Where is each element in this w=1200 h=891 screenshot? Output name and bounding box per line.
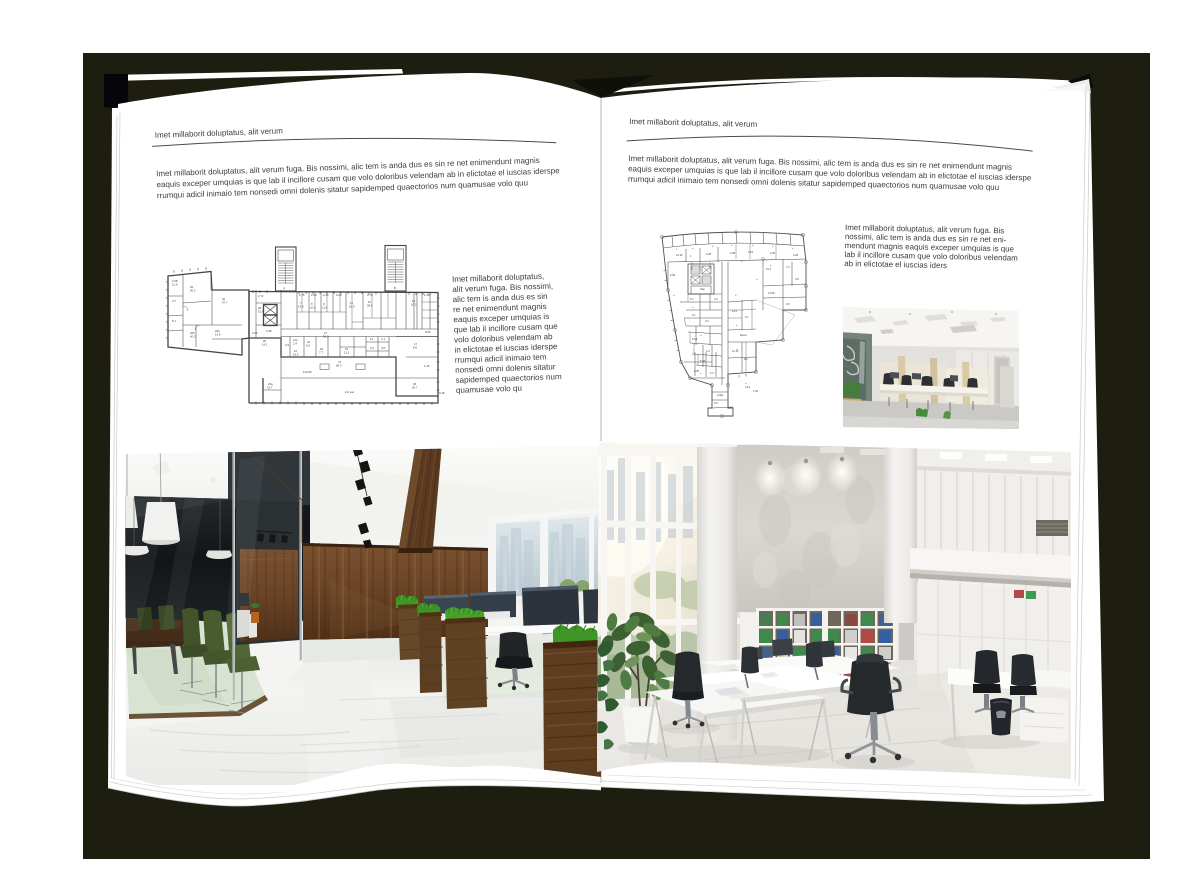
- svg-text:50.7: 50.7: [412, 386, 418, 390]
- svg-text:3.9: 3.9: [795, 277, 799, 281]
- svg-text:Б: Б: [394, 286, 396, 290]
- svg-text:2.75: 2.75: [299, 293, 305, 297]
- svg-text:2.72: 2.72: [258, 294, 264, 298]
- svg-text:4.00: 4.00: [770, 251, 776, 255]
- svg-text:8.8: 8.8: [413, 346, 417, 350]
- svg-text:3.3: 3.3: [705, 319, 709, 323]
- svg-text:14.08: 14.08: [768, 291, 775, 295]
- svg-text:28.6: 28.6: [367, 304, 373, 308]
- svg-text:4.4: 4.4: [706, 349, 710, 353]
- svg-text:9.7: 9.7: [745, 315, 749, 319]
- svg-text:14.16: 14.16: [676, 253, 683, 257]
- svg-text:16.5: 16.5: [349, 305, 355, 309]
- svg-text:9.96: 9.96: [694, 369, 700, 373]
- svg-text:2.96: 2.96: [670, 273, 676, 277]
- svg-text:1.45: 1.45: [424, 293, 430, 297]
- svg-text:6.6: 6.6: [306, 344, 310, 348]
- svg-text:0.54: 0.54: [425, 330, 431, 334]
- svg-text:31.7: 31.7: [267, 386, 273, 390]
- svg-text:37.7: 37.7: [222, 301, 228, 305]
- svg-text:12.6: 12.6: [732, 309, 738, 313]
- svg-text:5.1: 5.1: [172, 319, 176, 323]
- svg-text:12.6: 12.6: [172, 283, 178, 287]
- svg-text:A: A: [283, 286, 285, 290]
- svg-text:3.08: 3.08: [706, 252, 712, 256]
- svg-text:11.2: 11.2: [344, 351, 350, 355]
- svg-text:1.50: 1.50: [753, 389, 759, 393]
- svg-text:36.2: 36.2: [190, 289, 196, 293]
- svg-text:14.1: 14.1: [262, 343, 268, 347]
- svg-text:4.08: 4.08: [730, 251, 736, 255]
- svg-text:4.16: 4.16: [748, 250, 754, 254]
- svg-text:7.7: 7.7: [319, 351, 323, 355]
- svg-text:4.9: 4.9: [370, 346, 374, 350]
- svg-text:96.3: 96.3: [336, 364, 342, 368]
- svg-text:11.6: 11.6: [322, 306, 328, 310]
- svg-text:21.8: 21.8: [258, 310, 264, 314]
- svg-text:3.36: 3.36: [266, 329, 272, 333]
- svg-text:2-й зал: 2-й зал: [345, 390, 355, 394]
- svg-text:7.4: 7.4: [786, 265, 790, 269]
- svg-text:3.09: 3.09: [336, 293, 342, 297]
- svg-text:3.0: 3.0: [714, 401, 718, 405]
- svg-text:2.30: 2.30: [323, 293, 329, 297]
- svg-text:10.2: 10.2: [411, 303, 417, 307]
- svg-text:Room: Room: [740, 333, 747, 337]
- svg-text:0.18: 0.18: [439, 391, 445, 395]
- svg-text:4.7: 4.7: [172, 299, 176, 303]
- svg-text:1.3: 1.3: [381, 337, 385, 341]
- svg-text:5.2: 5.2: [690, 297, 694, 301]
- svg-text:2.4: 2.4: [293, 342, 297, 346]
- svg-text:14.5: 14.5: [293, 353, 299, 357]
- svg-text:1.43: 1.43: [424, 364, 430, 368]
- svg-text:13.8: 13.8: [298, 305, 304, 309]
- svg-text:6.18: 6.18: [692, 337, 698, 341]
- svg-text:13.6: 13.6: [215, 333, 221, 337]
- svg-text:4.1: 4.1: [692, 313, 696, 317]
- svg-text:3.43: 3.43: [252, 331, 258, 335]
- svg-text:40.2: 40.2: [190, 335, 196, 339]
- svg-text:15.2: 15.2: [766, 267, 772, 271]
- svg-text:10.6: 10.6: [310, 306, 316, 310]
- svg-text:142.80: 142.80: [303, 370, 312, 374]
- svg-text:5.08: 5.08: [700, 359, 706, 363]
- svg-text:2.9: 2.9: [285, 343, 289, 347]
- svg-text:14.9: 14.9: [745, 385, 751, 389]
- svg-text:3.75: 3.75: [367, 293, 373, 297]
- svg-text:4.8: 4.8: [381, 346, 385, 350]
- svg-text:3.3: 3.3: [710, 371, 714, 375]
- svg-text:8.2: 8.2: [744, 357, 748, 361]
- svg-text:9.6: 9.6: [786, 302, 790, 306]
- svg-text:14: 14: [370, 337, 374, 341]
- svg-text:4.28: 4.28: [793, 253, 799, 257]
- svg-text:2.60: 2.60: [311, 293, 317, 297]
- svg-text:36.3: 36.3: [323, 335, 329, 339]
- svg-text:2.9: 2.9: [714, 297, 718, 301]
